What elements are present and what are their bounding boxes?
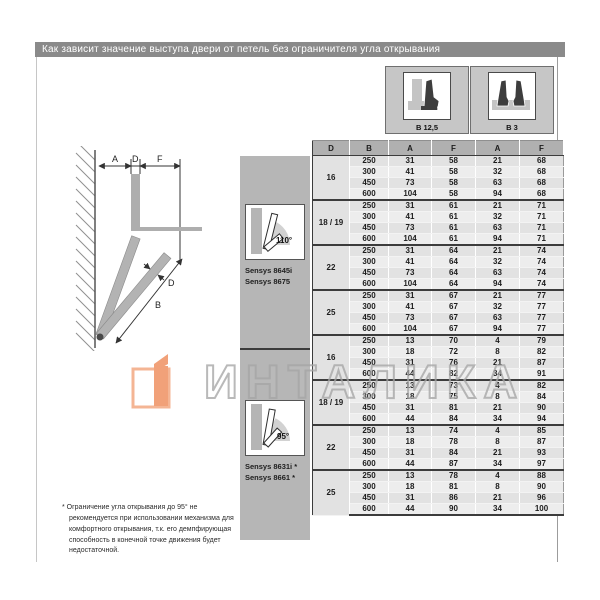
table-cell: 34 xyxy=(476,369,520,381)
spec-table-container: D B A F A F 1625031582168300415832684507… xyxy=(312,140,564,516)
table-cell: 600 xyxy=(350,504,389,516)
table-cell: 450 xyxy=(350,178,389,189)
table-cell: 250 xyxy=(350,156,389,167)
table-row: 60044873497 xyxy=(313,459,564,471)
table-cell: 68 xyxy=(520,167,564,178)
table-cell: 32 xyxy=(476,212,520,223)
table-row: 3001881890 xyxy=(313,482,564,493)
table-cell: 21 xyxy=(476,200,520,212)
watermark-logo-icon xyxy=(130,352,188,412)
cell-d-group: 22 xyxy=(313,425,350,470)
table-cell: 78 xyxy=(432,470,476,482)
table-cell: 300 xyxy=(350,167,389,178)
door-diagram: A D F D B xyxy=(62,146,222,351)
table-cell: 82 xyxy=(520,380,564,392)
table-row: 600104649474 xyxy=(313,279,564,291)
table-row: 18 / 192501373482 xyxy=(313,380,564,392)
table-cell: 70 xyxy=(432,335,476,347)
table-header-row: D B A F A F xyxy=(313,141,564,156)
table-cell: 68 xyxy=(520,178,564,189)
table-cell: 94 xyxy=(520,414,564,426)
table-row: 3001872882 xyxy=(313,347,564,358)
wall-hatching xyxy=(76,146,95,351)
table-cell: 41 xyxy=(389,167,432,178)
table-cell: 78 xyxy=(432,437,476,448)
table-cell: 63 xyxy=(476,268,520,279)
table-cell: 61 xyxy=(432,200,476,212)
table-cell: 600 xyxy=(350,324,389,336)
table-cell: 64 xyxy=(432,245,476,257)
table-row: 3001875884 xyxy=(313,392,564,403)
table-cell: 73 xyxy=(389,223,432,234)
table-cell: 104 xyxy=(389,189,432,201)
table-cell: 31 xyxy=(389,290,432,302)
catalog-page: Как зависит значение выступа двери от пе… xyxy=(0,0,600,600)
table-cell: 21 xyxy=(476,448,520,459)
table-cell: 88 xyxy=(520,470,564,482)
table-cell: 71 xyxy=(520,223,564,234)
table-cell: 18 xyxy=(389,437,432,448)
table-cell: 74 xyxy=(520,279,564,291)
table-cell: 58 xyxy=(432,189,476,201)
table-row: 45031762187 xyxy=(313,358,564,369)
legend-label-b3: B 3 xyxy=(471,123,553,132)
table-cell: 300 xyxy=(350,302,389,313)
table-cell: 63 xyxy=(476,178,520,189)
table-cell: 77 xyxy=(520,324,564,336)
table-cell: 450 xyxy=(350,268,389,279)
sidebar-section-95: 95° Sensys 8631i * Sensys 8661 * xyxy=(240,348,310,540)
table-cell: 21 xyxy=(476,290,520,302)
table-cell: 74 xyxy=(520,257,564,268)
table-cell: 21 xyxy=(476,358,520,369)
dim-d-label: D xyxy=(132,154,139,164)
table-cell: 4 xyxy=(476,335,520,347)
table-cell: 31 xyxy=(389,245,432,257)
table-cell: 73 xyxy=(389,178,432,189)
table-cell: 41 xyxy=(389,302,432,313)
table-cell: 63 xyxy=(476,313,520,324)
table-row: 1625031582168 xyxy=(313,156,564,167)
table-cell: 87 xyxy=(520,437,564,448)
model-name: Sensys 8675 xyxy=(245,276,310,287)
table-cell: 13 xyxy=(389,470,432,482)
table-cell: 72 xyxy=(432,347,476,358)
legend-box-b125: B 12,5 xyxy=(385,66,469,134)
table-cell: 93 xyxy=(520,448,564,459)
table-cell: 21 xyxy=(476,245,520,257)
table-cell: 18 xyxy=(389,392,432,403)
table-cell: 87 xyxy=(520,358,564,369)
table-cell: 104 xyxy=(389,324,432,336)
table-cell: 250 xyxy=(350,290,389,302)
hinge-twin-mounting-icon xyxy=(488,72,536,120)
table-cell: 34 xyxy=(476,459,520,471)
page-frame-left xyxy=(36,57,37,562)
open-door-1 xyxy=(96,236,140,338)
table-cell: 67 xyxy=(432,313,476,324)
table-cell: 600 xyxy=(350,369,389,381)
table-cell: 21 xyxy=(476,493,520,504)
table-row: 600104589468 xyxy=(313,189,564,201)
table-cell: 8 xyxy=(476,392,520,403)
table-cell: 58 xyxy=(432,178,476,189)
table-cell: 32 xyxy=(476,167,520,178)
table-cell: 250 xyxy=(350,245,389,257)
table-cell: 77 xyxy=(520,302,564,313)
table-cell: 90 xyxy=(520,403,564,414)
table-row: 2525031672177 xyxy=(313,290,564,302)
table-cell: 300 xyxy=(350,257,389,268)
table-cell: 32 xyxy=(476,257,520,268)
table-cell: 18 xyxy=(389,347,432,358)
spec-table: D B A F A F 1625031582168300415832684507… xyxy=(312,140,564,516)
model-name: Sensys 8645i xyxy=(245,265,310,276)
table-cell: 450 xyxy=(350,313,389,324)
table-cell: 250 xyxy=(350,425,389,437)
table-cell: 600 xyxy=(350,414,389,426)
sidebar-section-110: 110° Sensys 8645i Sensys 8675 xyxy=(240,156,310,348)
table-cell: 79 xyxy=(520,335,564,347)
open-door-2 xyxy=(97,253,171,339)
table-cell: 8 xyxy=(476,347,520,358)
table-cell: 71 xyxy=(520,234,564,246)
table-cell: 44 xyxy=(389,504,432,516)
table-row: 600104679477 xyxy=(313,324,564,336)
table-row: 162501370479 xyxy=(313,335,564,347)
table-row: 2225031642174 xyxy=(313,245,564,257)
table-cell: 31 xyxy=(389,493,432,504)
table-row: 30041583268 xyxy=(313,167,564,178)
table-row: 45031812190 xyxy=(313,403,564,414)
table-cell: 94 xyxy=(476,279,520,291)
cell-d-group: 22 xyxy=(313,245,350,290)
table-cell: 13 xyxy=(389,335,432,347)
mounting-legend: B 12,5 B 3 xyxy=(385,66,554,134)
table-cell: 96 xyxy=(520,493,564,504)
table-cell: 82 xyxy=(432,369,476,381)
table-cell: 104 xyxy=(389,279,432,291)
table-cell: 97 xyxy=(520,459,564,471)
table-cell: 44 xyxy=(389,414,432,426)
table-cell: 450 xyxy=(350,493,389,504)
table-cell: 64 xyxy=(432,268,476,279)
table-cell: 91 xyxy=(520,369,564,381)
table-cell: 84 xyxy=(432,448,476,459)
table-cell: 71 xyxy=(520,212,564,223)
table-cell: 300 xyxy=(350,212,389,223)
table-cell: 63 xyxy=(476,223,520,234)
table-cell: 450 xyxy=(350,223,389,234)
table-cell: 300 xyxy=(350,437,389,448)
model-name: Sensys 8631i * xyxy=(245,461,310,472)
cell-d-group: 18 / 19 xyxy=(313,200,350,245)
spec-table-body: 1625031582168300415832684507358636860010… xyxy=(313,156,564,516)
angle-110-label: 110° xyxy=(276,236,292,245)
table-cell: 81 xyxy=(432,403,476,414)
table-cell: 32 xyxy=(476,302,520,313)
hinge-overlay-mounting-icon xyxy=(403,72,451,120)
table-cell: 8 xyxy=(476,437,520,448)
table-cell: 73 xyxy=(389,313,432,324)
table-cell: 41 xyxy=(389,212,432,223)
col-header-a1: A xyxy=(389,141,432,156)
table-cell: 600 xyxy=(350,459,389,471)
table-cell: 75 xyxy=(432,392,476,403)
table-cell: 74 xyxy=(520,245,564,257)
table-cell: 73 xyxy=(432,380,476,392)
table-cell: 90 xyxy=(432,504,476,516)
table-cell: 67 xyxy=(432,302,476,313)
table-cell: 74 xyxy=(432,425,476,437)
table-cell: 81 xyxy=(432,482,476,493)
table-cell: 68 xyxy=(520,189,564,201)
table-cell: 450 xyxy=(350,358,389,369)
table-cell: 250 xyxy=(350,200,389,212)
angle-95-label: 95° xyxy=(277,432,289,441)
table-cell: 67 xyxy=(432,324,476,336)
table-row: 30041643274 xyxy=(313,257,564,268)
table-cell: 71 xyxy=(520,200,564,212)
table-cell: 67 xyxy=(432,290,476,302)
table-row: 30041673277 xyxy=(313,302,564,313)
table-cell: 300 xyxy=(350,482,389,493)
table-cell: 94 xyxy=(476,234,520,246)
cell-d-group: 25 xyxy=(313,290,350,335)
table-cell: 44 xyxy=(389,369,432,381)
table-cell: 21 xyxy=(476,403,520,414)
table-row: 45031842193 xyxy=(313,448,564,459)
table-cell: 31 xyxy=(389,358,432,369)
table-cell: 34 xyxy=(476,414,520,426)
table-row: 3001878887 xyxy=(313,437,564,448)
col-header-a2: A xyxy=(476,141,520,156)
table-cell: 77 xyxy=(520,290,564,302)
table-cell: 44 xyxy=(389,459,432,471)
table-cell: 450 xyxy=(350,448,389,459)
table-cell: 94 xyxy=(476,189,520,201)
col-header-d: D xyxy=(313,141,350,156)
table-cell: 13 xyxy=(389,380,432,392)
table-cell: 600 xyxy=(350,189,389,201)
table-row: 45031862196 xyxy=(313,493,564,504)
hinge-95deg-icon: 95° xyxy=(245,400,305,456)
table-cell: 76 xyxy=(432,358,476,369)
table-row: 600104619471 xyxy=(313,234,564,246)
table-cell: 250 xyxy=(350,335,389,347)
col-header-b: B xyxy=(350,141,389,156)
table-cell: 18 xyxy=(389,482,432,493)
table-cell: 87 xyxy=(432,459,476,471)
footnote: * Ограничение угла открывания до 95° не … xyxy=(62,503,243,557)
table-cell: 84 xyxy=(520,392,564,403)
table-row: 60044823491 xyxy=(313,369,564,381)
table-row: 18 / 1925031612171 xyxy=(313,200,564,212)
hinge-pivot xyxy=(97,334,104,341)
legend-box-b3: B 3 xyxy=(470,66,554,134)
table-cell: 4 xyxy=(476,380,520,392)
table-cell: 41 xyxy=(389,257,432,268)
cell-d-group: 25 xyxy=(313,470,350,515)
table-cell: 104 xyxy=(389,234,432,246)
cell-d-group: 16 xyxy=(313,335,350,380)
page-title: Как зависит значение выступа двери от пе… xyxy=(35,42,565,57)
table-cell: 77 xyxy=(520,313,564,324)
table-row: 252501378488 xyxy=(313,470,564,482)
door-thickness-label: D xyxy=(168,278,175,288)
table-cell: 85 xyxy=(520,425,564,437)
table-cell: 61 xyxy=(432,212,476,223)
table-cell: 74 xyxy=(520,268,564,279)
cabinet-panel xyxy=(131,227,202,231)
table-cell: 82 xyxy=(520,347,564,358)
table-row: 60044843494 xyxy=(313,414,564,426)
table-row: 45073616371 xyxy=(313,223,564,234)
hinge-110deg-icon: 110° xyxy=(245,204,305,260)
table-cell: 450 xyxy=(350,403,389,414)
table-cell: 31 xyxy=(389,403,432,414)
table-cell: 31 xyxy=(389,156,432,167)
table-cell: 300 xyxy=(350,392,389,403)
dim-a-label: A xyxy=(112,154,118,164)
table-row: 45073586368 xyxy=(313,178,564,189)
table-cell: 250 xyxy=(350,380,389,392)
table-cell: 94 xyxy=(476,324,520,336)
col-header-f1: F xyxy=(432,141,476,156)
model-list-110: Sensys 8645i Sensys 8675 xyxy=(240,265,310,287)
table-cell: 61 xyxy=(432,223,476,234)
table-cell: 13 xyxy=(389,425,432,437)
table-cell: 100 xyxy=(520,504,564,516)
table-cell: 600 xyxy=(350,279,389,291)
table-cell: 61 xyxy=(432,234,476,246)
table-cell: 31 xyxy=(389,200,432,212)
cell-d-group: 16 xyxy=(313,156,350,201)
table-cell: 84 xyxy=(432,414,476,426)
table-cell: 21 xyxy=(476,156,520,167)
table-cell: 73 xyxy=(389,268,432,279)
table-cell: 58 xyxy=(432,156,476,167)
model-name: Sensys 8661 * xyxy=(245,472,310,483)
table-cell: 90 xyxy=(520,482,564,493)
table-cell: 31 xyxy=(389,448,432,459)
table-row: 222501374485 xyxy=(313,425,564,437)
table-cell: 64 xyxy=(432,257,476,268)
dim-f-label: F xyxy=(157,154,163,164)
table-cell: 58 xyxy=(432,167,476,178)
table-cell: 4 xyxy=(476,425,520,437)
door-length-label: B xyxy=(155,300,161,310)
table-cell: 64 xyxy=(432,279,476,291)
table-cell: 4 xyxy=(476,470,520,482)
legend-label-b125: B 12,5 xyxy=(386,123,468,132)
table-cell: 250 xyxy=(350,470,389,482)
table-cell: 68 xyxy=(520,156,564,167)
closed-door xyxy=(131,174,140,229)
cell-d-group: 18 / 19 xyxy=(313,380,350,425)
col-header-f2: F xyxy=(520,141,564,156)
table-cell: 600 xyxy=(350,234,389,246)
table-cell: 34 xyxy=(476,504,520,516)
table-row: 30041613271 xyxy=(313,212,564,223)
table-row: 45073676377 xyxy=(313,313,564,324)
table-cell: 86 xyxy=(432,493,476,504)
table-row: 600449034100 xyxy=(313,504,564,516)
table-cell: 300 xyxy=(350,347,389,358)
table-row: 45073646374 xyxy=(313,268,564,279)
table-cell: 8 xyxy=(476,482,520,493)
model-list-95: Sensys 8631i * Sensys 8661 * xyxy=(240,461,310,483)
